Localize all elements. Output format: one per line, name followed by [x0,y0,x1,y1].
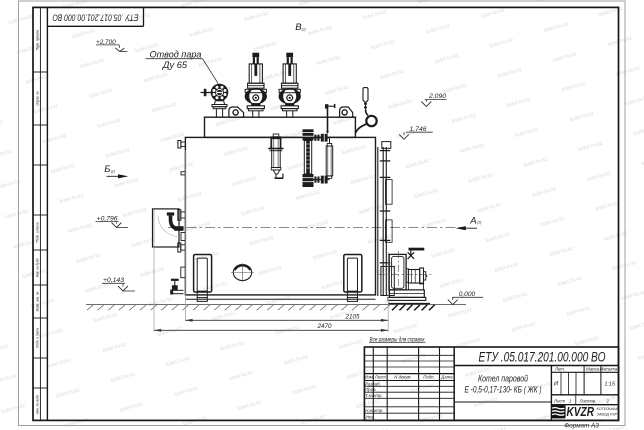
svg-text:N докум.: N докум. [394,375,411,380]
svg-text:А: А [469,216,476,227]
svg-text:Лист: Лист [374,375,386,380]
svg-text:Листов: Листов [579,399,596,404]
svg-text:Е -0,5-0,17-130- КБ ( ЖК ): Е -0,5-0,17-130- КБ ( ЖК ) [465,384,542,394]
svg-text:КОТЕЛЬНЫЙ: КОТЕЛЬНЫЙ [597,407,620,411]
svg-text:Лист: Лист [553,399,565,404]
svg-text:Инв. № подл.: Инв. № подл. [36,394,40,414]
svg-text:И: И [554,381,559,387]
svg-text:Справ. №: Справ. № [36,91,40,106]
svg-text:Масштаб: Масштаб [600,367,621,372]
svg-text:Пров.: Пров. [365,387,376,392]
svg-text:Б: Б [104,164,110,175]
svg-text:Изм: Изм [365,375,373,380]
svg-text:2470: 2470 [316,323,332,330]
svg-text:Перв. примен.: Перв. примен. [36,29,40,50]
svg-text:ЕТУ .05.017.201.00.000 ВО: ЕТУ .05.017.201.00.000 ВО [52,13,139,24]
svg-text:(2): (2) [302,27,306,31]
svg-text:Т.контр.: Т.контр. [365,393,382,398]
svg-text:Подп.: Подп. [423,375,434,380]
svg-text:KVZR: KVZR [567,404,595,419]
svg-text:Формат А3: Формат А3 [564,422,599,429]
svg-text:Лит.: Лит. [554,367,565,372]
svg-text:Ду 65: Ду 65 [162,60,188,70]
svg-text:Инв. № дубл.: Инв. № дубл. [36,258,40,278]
svg-text:Разраб.: Разраб. [365,381,381,386]
svg-text:(2): (2) [111,169,115,173]
svg-text:2105: 2105 [344,313,360,320]
svg-text:(2): (2) [477,220,481,224]
svg-text:Подп. и дата: Подп. и дата [36,328,40,348]
svg-text:Взам. инв. №: Взам. инв. № [36,291,40,311]
svg-text:1:15: 1:15 [604,382,616,388]
svg-text:Дата: Дата [440,375,453,380]
svg-text:Н.контр.: Н.контр. [365,408,383,413]
svg-text:Подп. и дата: Подп. и дата [36,222,40,242]
svg-text:ЕТУ .05.017.201.00.000 ВО: ЕТУ .05.017.201.00.000 ВО [479,350,606,365]
svg-text:ЗАВОД РЗР: ЗАВОД РЗР [597,412,618,416]
svg-text:Все размеры для справок: Все размеры для справок [370,336,426,344]
svg-text:Котел паровой: Котел паровой [478,373,529,384]
svg-text:Масса: Масса [586,367,599,372]
svg-text:Отвод пара: Отвод пара [150,50,202,60]
svg-text:Утв.: Утв. [365,414,375,419]
